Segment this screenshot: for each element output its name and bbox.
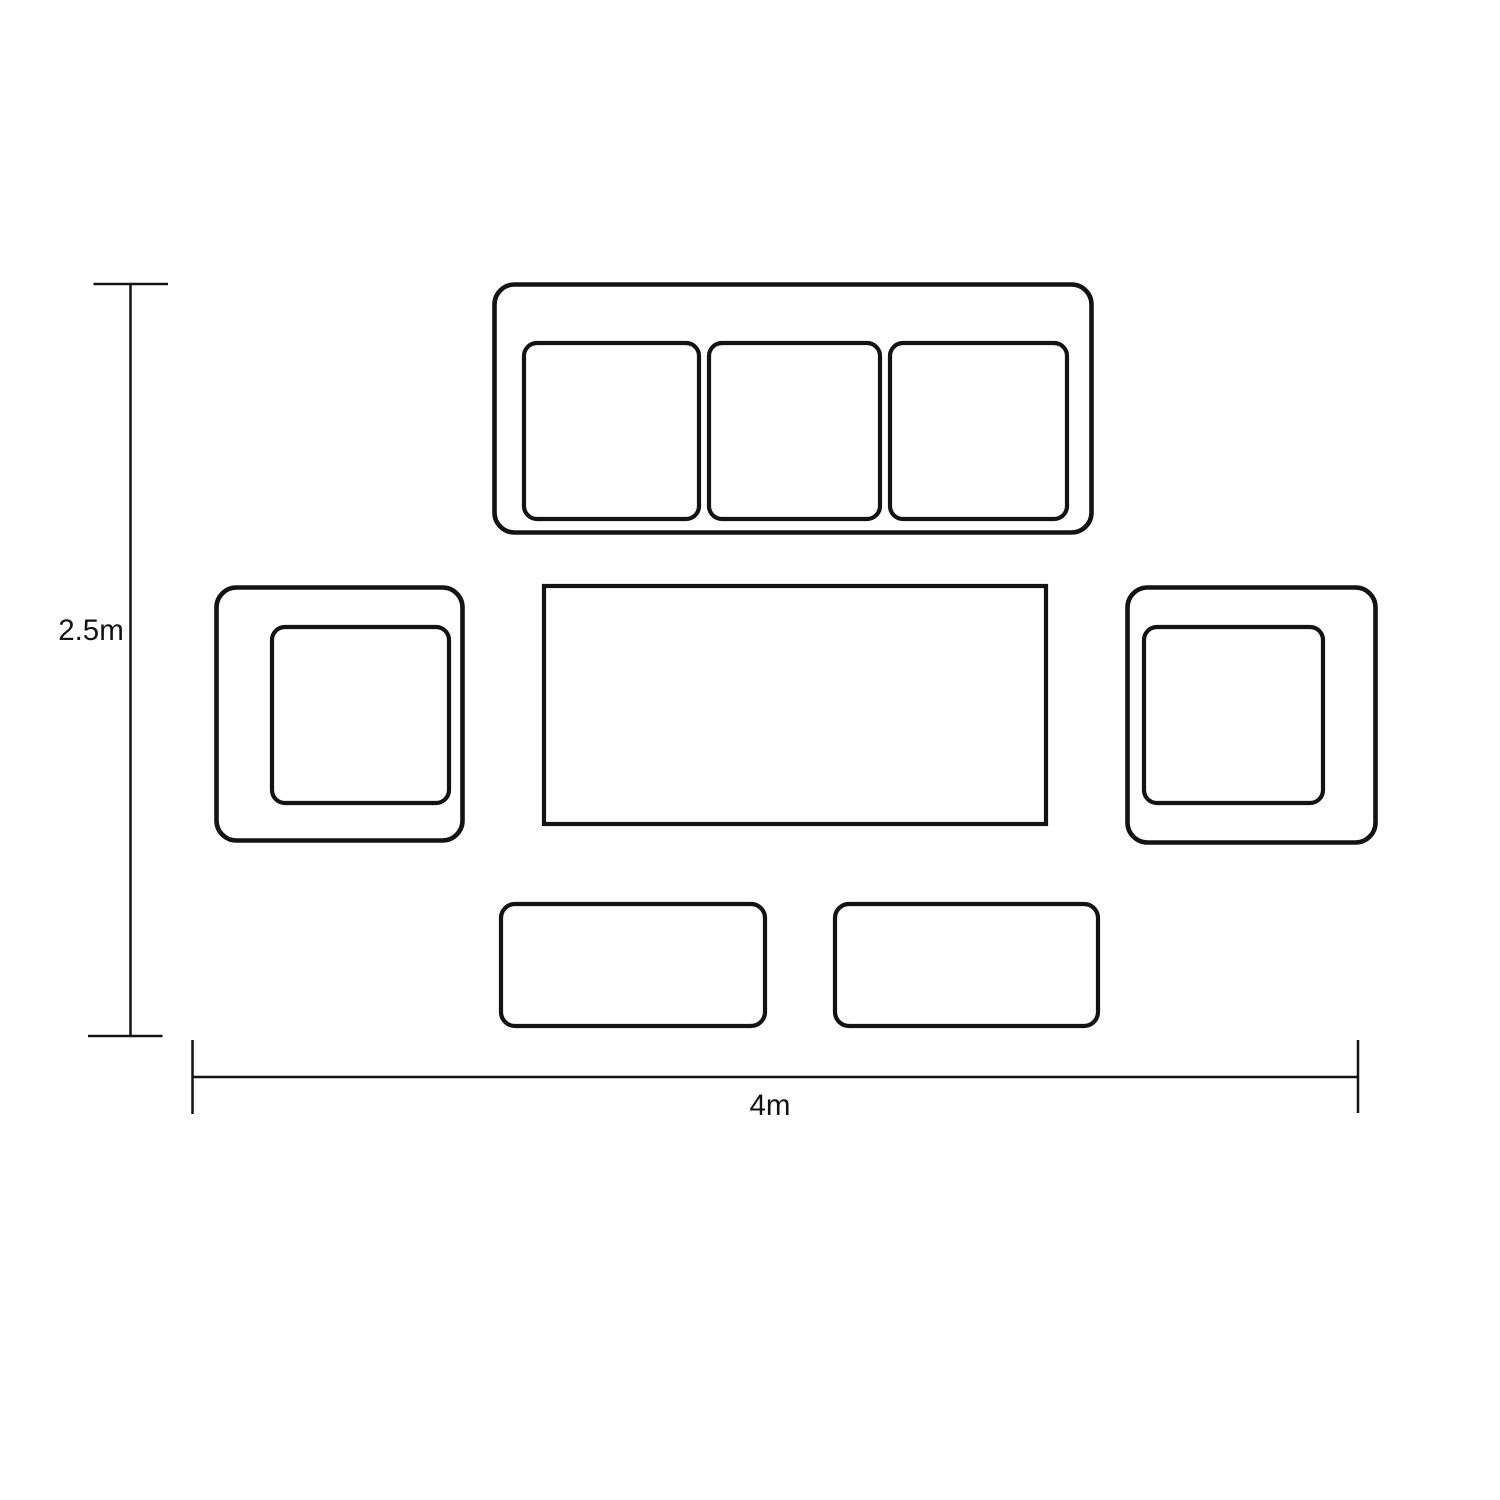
svg-text:2.5m: 2.5m bbox=[58, 614, 124, 647]
svg-text:4m: 4m bbox=[750, 1089, 791, 1122]
